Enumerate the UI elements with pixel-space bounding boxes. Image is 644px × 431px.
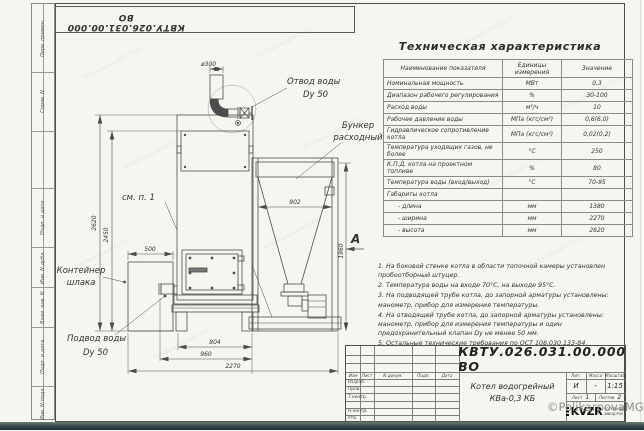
margin-label: Перв. примен. bbox=[32, 4, 54, 72]
spec-cell: МПа (кгс/см²) bbox=[503, 126, 562, 143]
spec-cell: мм bbox=[503, 201, 562, 213]
feeder-motor bbox=[308, 295, 326, 318]
note-2: 2. Температура воды на входе 70°С, на вы… bbox=[378, 281, 622, 290]
spec-cell: мм bbox=[503, 213, 562, 225]
table-row: Рабочее давление водыМПа (кгс/см²)0,6(6,… bbox=[384, 114, 633, 126]
spec-cell: 1380 bbox=[562, 201, 633, 213]
margin-label: Инв. N дубл. bbox=[32, 248, 54, 287]
margin-label: Взам. инв. N bbox=[32, 288, 54, 327]
spec-cell: - ширина bbox=[384, 213, 503, 225]
chimney bbox=[208, 75, 256, 133]
table-row: Температура уходящих газов, не более°С25… bbox=[384, 143, 633, 160]
lit-label: Лит. bbox=[566, 372, 586, 379]
spec-section: Техническая характеристика Наименование … bbox=[383, 40, 617, 237]
spec-col-name: Наименование показателя bbox=[384, 60, 503, 78]
spec-cell bbox=[562, 189, 633, 201]
spec-col-units: Единицы измерения bbox=[503, 60, 562, 78]
dim-width-2270: 2270 bbox=[225, 363, 240, 370]
spec-title: Техническая характеристика bbox=[383, 40, 617, 53]
margin-label bbox=[32, 132, 54, 188]
label-slag-container-2: шлака bbox=[67, 278, 96, 288]
dim-chimney-diameter: ø300 bbox=[200, 61, 216, 68]
sheet-label: Лист bbox=[572, 395, 583, 400]
spec-cell: Гидравлическое сопротивление котла bbox=[384, 126, 503, 143]
dim-height-1960: 1960 bbox=[338, 243, 345, 258]
spec-cell: К.П.Д. котла на проектном топливе bbox=[384, 160, 503, 177]
spec-cell: МПа (кгс/см²) bbox=[503, 114, 562, 126]
scale-value: 1:15 bbox=[605, 379, 625, 393]
rev-header-podp: Подп. bbox=[412, 372, 435, 379]
spec-cell: 0,02(0,2) bbox=[562, 126, 633, 143]
note-3: 3. На подводящей трубе котла, до запорно… bbox=[378, 291, 622, 309]
notes-section: 1. На боковой стенке котла в области топ… bbox=[378, 262, 622, 349]
margin-section: Подп. и дата bbox=[32, 328, 54, 387]
mass-label: Масса bbox=[586, 372, 605, 379]
table-row: Расход водым³/ч10 bbox=[384, 102, 633, 114]
margin-label: Инв. N подл. bbox=[32, 387, 54, 419]
lit-value: И bbox=[566, 379, 586, 393]
spec-cell: % bbox=[503, 90, 562, 102]
margin-column: Перв. примен. Справ. N Подп. и дата Инв.… bbox=[31, 3, 55, 420]
spec-cell: Диапазон рабочего регулирования bbox=[384, 90, 503, 102]
watermark-signature: ©PolikarpovaMG2021 bbox=[547, 400, 644, 414]
table-row: - длинамм1380 bbox=[384, 201, 633, 213]
margin-section: Взам. инв. N bbox=[32, 288, 54, 328]
boiler-geometry bbox=[95, 66, 364, 374]
margin-section: Инв. N подл. bbox=[32, 387, 54, 419]
label-water-outlet: Отвод воды bbox=[287, 77, 341, 87]
dim-width-500: 500 bbox=[144, 246, 156, 253]
table-row: Гидравлическое сопротивление котлаМПа (к… bbox=[384, 126, 633, 143]
boiler-drawing: ø300 2620 2450 500 902 1960 804 960 2270… bbox=[55, 3, 390, 421]
inlet-valve bbox=[159, 283, 177, 295]
spec-cell: Расход воды bbox=[384, 102, 503, 114]
spec-header-row: Наименование показателя Единицы измерени… bbox=[384, 60, 633, 78]
spec-cell: 80 bbox=[562, 160, 633, 177]
spec-cell: °С bbox=[503, 143, 562, 160]
margin-section: Подп. и дата bbox=[32, 189, 54, 248]
spec-table: Наименование показателя Единицы измерени… bbox=[383, 59, 633, 237]
label-water-inlet-dy: Dy 50 bbox=[83, 348, 108, 358]
spec-cell: м³/ч bbox=[503, 102, 562, 114]
label-slag-container: Контейнер bbox=[57, 266, 106, 276]
mass-value: - bbox=[586, 379, 605, 393]
spec-cell: Температура уходящих газов, не более bbox=[384, 143, 503, 160]
margin-label: Подп. и дата bbox=[32, 189, 54, 247]
paper-edge bbox=[640, 0, 641, 422]
spec-cell: 2270 bbox=[562, 213, 633, 225]
margin-section: Перв. примен. bbox=[32, 4, 54, 73]
dim-width-902: 902 bbox=[289, 199, 301, 206]
spec-cell: мм bbox=[503, 225, 562, 237]
label-water-inlet: Подвод воды bbox=[67, 334, 126, 344]
spec-cell: 70-95 bbox=[562, 177, 633, 189]
photo-bottom-edge bbox=[0, 422, 644, 430]
spec-cell: °С bbox=[503, 177, 562, 189]
spec-cell: 0,6(6,0) bbox=[562, 114, 633, 126]
titleblock-docnumber: КВТУ.026.031.00.000 ВО bbox=[459, 346, 625, 372]
label-bunker-2: расходный bbox=[332, 133, 383, 143]
dim-height-2450: 2450 bbox=[103, 227, 110, 242]
fuel-bunker bbox=[249, 158, 341, 331]
spec-cell: Рабочее давление воды bbox=[384, 114, 503, 126]
spec-cell bbox=[503, 189, 562, 201]
product-title-line2: КВа-0,3 КБ bbox=[490, 393, 535, 405]
table-row: Габариты котла bbox=[384, 189, 633, 201]
label-water-outlet-dy: Dy 50 bbox=[303, 90, 328, 100]
sheets-label: Листов bbox=[599, 395, 615, 400]
dim-width-960: 960 bbox=[200, 351, 212, 358]
rev-header-data: Дата bbox=[435, 372, 459, 379]
dim-height-2620: 2620 bbox=[91, 215, 98, 230]
spec-col-value: Значение bbox=[562, 60, 633, 78]
margin-section: Инв. N дубл. bbox=[32, 248, 54, 288]
door-handle bbox=[189, 268, 207, 272]
spec-cell: - длина bbox=[384, 201, 503, 213]
label-view-a: А bbox=[350, 232, 360, 246]
scale-label: Масштаб bbox=[605, 372, 625, 379]
spec-cell: 250 bbox=[562, 143, 633, 160]
furnace-door bbox=[182, 250, 244, 294]
margin-label: Справ. N bbox=[32, 73, 54, 131]
table-row: - высотамм2620 bbox=[384, 225, 633, 237]
table-row: - ширинамм2270 bbox=[384, 213, 633, 225]
margin-section bbox=[32, 132, 54, 189]
spec-cell: - высота bbox=[384, 225, 503, 237]
product-title-line1: Котел водогрейный bbox=[471, 381, 555, 393]
spec-cell: Номинальная мощность bbox=[384, 78, 503, 90]
note-1: 1. На боковой стенке котла в области топ… bbox=[378, 262, 622, 280]
spec-cell: МВт bbox=[503, 78, 562, 90]
margin-label: Подп. и дата bbox=[32, 328, 54, 386]
upper-door bbox=[181, 131, 249, 171]
spec-cell: 2620 bbox=[562, 225, 633, 237]
margin-section: Справ. N bbox=[32, 73, 54, 132]
dim-width-804: 804 bbox=[209, 339, 221, 346]
label-see-note-1: см. п. 1 bbox=[122, 193, 155, 203]
label-bunker: Бункер bbox=[342, 121, 374, 131]
